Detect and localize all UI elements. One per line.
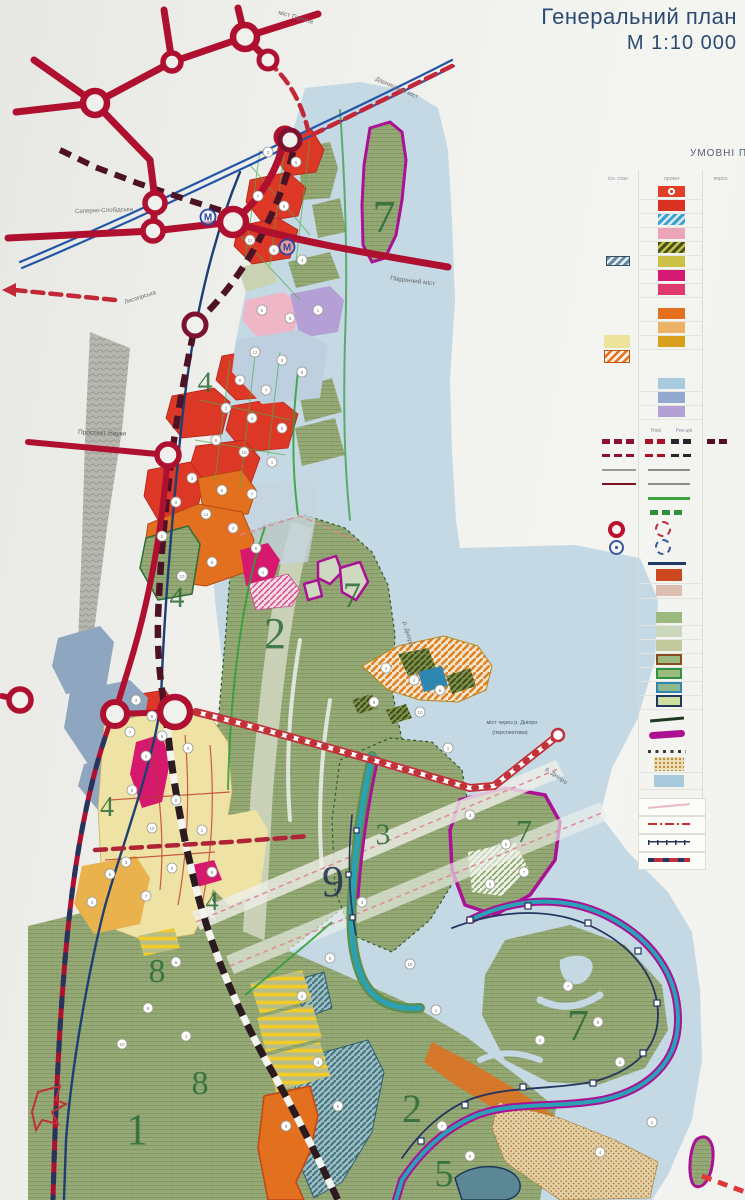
legend-row-divider — [640, 598, 702, 599]
zone-label: 8 — [192, 1065, 209, 1102]
legend-swatch — [658, 392, 685, 403]
legend-swatch — [648, 562, 686, 565]
legend-swatch — [656, 569, 682, 581]
legend-swatch — [658, 256, 685, 267]
zone-label: 4 — [100, 792, 114, 823]
zone-label: 7 — [567, 1001, 589, 1050]
general-plan-poster: 3579112468112357924681013579112468101357… — [0, 0, 745, 1200]
legend-swatch — [648, 858, 690, 862]
map-marker-number: 12 — [252, 350, 258, 355]
map-marker-number: 10 — [149, 826, 155, 831]
legend-swatch — [650, 510, 686, 515]
zone-label: 9 — [322, 857, 344, 906]
legend-swatch — [658, 322, 685, 333]
legend-swatch — [656, 695, 682, 707]
road-label: Лисогірська — [124, 290, 158, 306]
legend-swatch — [655, 521, 671, 537]
legend-panel: УМОВНІ ПО існ. станпроектперсп.НовіРек-ц… — [598, 142, 745, 887]
legend-row-divider — [640, 772, 702, 773]
legend-swatch — [648, 497, 690, 500]
legend-swatch — [602, 439, 636, 444]
zone-label: 3 — [376, 818, 391, 851]
legend-swatch — [656, 668, 682, 679]
zone-label: 5 — [435, 1153, 454, 1195]
legend-swatch — [608, 521, 625, 538]
legend-swatch — [602, 469, 636, 471]
legend-subcolumn-label: Нові — [651, 428, 661, 434]
map-scale: М 1:10 000 — [541, 32, 737, 55]
legend-swatch — [658, 186, 685, 197]
legend-swatch — [658, 270, 685, 281]
legend-swatch — [645, 454, 667, 457]
legend-swatch — [656, 626, 682, 637]
legend-grid-line — [702, 170, 703, 870]
legend-swatch — [604, 335, 630, 348]
bridge-label-line2: (перспектива) — [492, 730, 528, 736]
legend-swatch — [648, 840, 690, 845]
legend-swatch — [654, 757, 684, 771]
map-title: Генеральний план — [541, 4, 737, 30]
legend-swatch — [656, 682, 682, 693]
zone-label: 7 — [373, 191, 396, 242]
legend-swatch — [654, 775, 684, 787]
legend-header: УМОВНІ ПО — [690, 148, 745, 159]
legend-row-divider — [640, 419, 702, 420]
zone-label: 1 — [126, 1105, 148, 1154]
map-marker-number: 10 — [119, 1042, 125, 1047]
zone-label: 8 — [149, 953, 166, 990]
legend-swatch — [655, 539, 671, 555]
legend-swatch — [671, 439, 693, 444]
legend-swatch — [648, 483, 690, 485]
legend-swatch — [656, 612, 682, 623]
legend-swatch — [658, 406, 685, 417]
zone-label: 7 — [343, 575, 361, 615]
zone-label: 2 — [402, 1086, 422, 1131]
legend-swatch — [648, 750, 686, 753]
metro-letter: М — [204, 213, 212, 224]
legend-swatch — [707, 439, 731, 444]
legend-swatch — [645, 439, 667, 444]
legend-column-label: існ. стан — [608, 176, 627, 182]
legend-swatch — [658, 308, 685, 319]
legend-column-label: персп. — [714, 176, 729, 182]
zone-label: 7 — [516, 813, 532, 849]
legend-row-divider — [640, 297, 702, 298]
legend-grid-line — [638, 170, 639, 870]
legend-swatch — [650, 716, 684, 722]
legend-swatch — [649, 729, 685, 738]
aerial-photo-strip — [78, 332, 130, 648]
legend-swatch — [658, 200, 685, 211]
legend-row-divider — [640, 789, 702, 790]
zone-label: 4 — [170, 581, 185, 614]
map-marker-number: 10 — [179, 574, 185, 579]
legend-column-label: проект — [664, 176, 680, 182]
legend-swatch — [602, 483, 636, 485]
legend-swatch — [648, 469, 690, 471]
legend-row-divider — [640, 349, 702, 350]
legend-swatch — [658, 336, 685, 347]
legend-swatch — [658, 242, 685, 253]
legend-swatch — [609, 540, 624, 555]
legend-swatch — [656, 654, 682, 665]
map-marker-number: 11 — [248, 238, 253, 243]
map-marker-number: 11 — [204, 512, 209, 517]
legend-subcolumn-label: Рек-ція — [676, 428, 692, 434]
zone-label: 2 — [264, 609, 286, 658]
legend-swatch — [658, 228, 685, 239]
legend-swatch — [606, 256, 630, 266]
map-marker-number: 10 — [241, 450, 247, 455]
legend-swatch — [656, 640, 682, 651]
legend-swatch — [604, 350, 630, 363]
bridge-label-line1: міст через р. Дніпро — [487, 720, 538, 726]
legend-swatch — [658, 284, 685, 295]
legend-swatch — [648, 823, 690, 825]
zone-label: 4 — [206, 887, 219, 916]
corner-dashed-road — [702, 1176, 745, 1192]
legend-row-divider — [640, 709, 702, 710]
map-marker-number: 10 — [417, 710, 423, 715]
map-marker-number: 10 — [407, 962, 413, 967]
legend-swatch — [656, 585, 682, 596]
legend-row-box — [638, 816, 706, 834]
metro-letter: М — [283, 243, 291, 254]
legend-swatch — [658, 214, 685, 225]
legend-swatch — [602, 454, 636, 457]
title-block: Генеральний план М 1:10 000 — [541, 4, 737, 55]
legend-swatch — [658, 378, 685, 389]
zone-label: 4 — [198, 366, 213, 399]
legend-swatch — [671, 454, 693, 457]
road-label: Саперно-Слобідська — [75, 207, 134, 215]
